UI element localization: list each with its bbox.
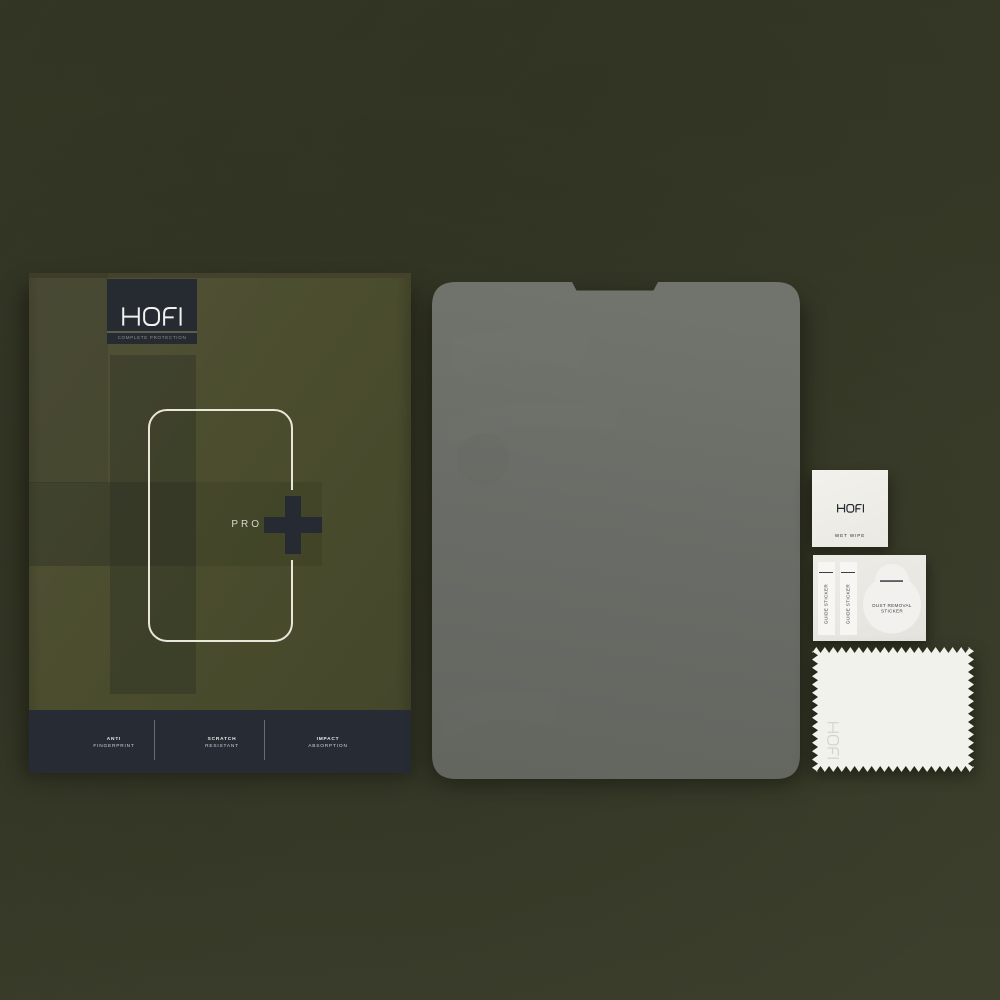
svg-text:STICKER: STICKER (881, 609, 903, 614)
svg-text:DUST REMOVAL: DUST REMOVAL (872, 603, 912, 608)
